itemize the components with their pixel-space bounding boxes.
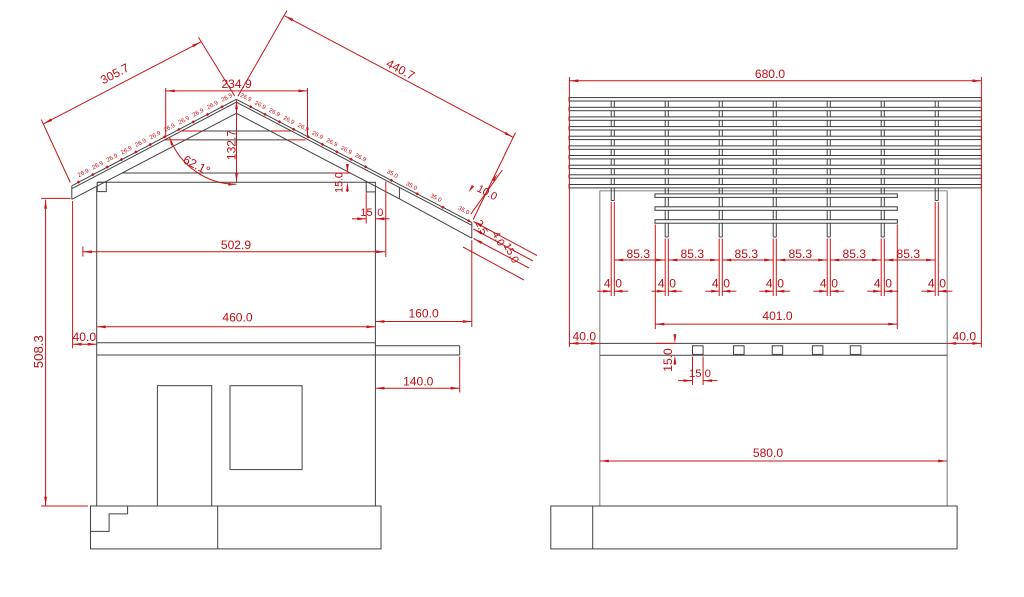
svg-text:0: 0: [615, 277, 622, 291]
svg-text:15.0: 15.0: [333, 172, 345, 193]
svg-text:0: 0: [885, 277, 892, 291]
svg-text:0: 0: [669, 277, 676, 291]
svg-text:0: 0: [705, 368, 711, 380]
svg-text:85.3: 85.3: [735, 247, 759, 261]
svg-text:502.9: 502.9: [221, 238, 252, 252]
svg-text:15: 15: [360, 207, 372, 219]
svg-text:40.0: 40.0: [953, 330, 977, 344]
svg-text:0: 0: [377, 207, 383, 219]
svg-text:4: 4: [712, 277, 719, 291]
svg-text:401.0: 401.0: [762, 309, 793, 323]
svg-text:508.3: 508.3: [31, 335, 46, 368]
svg-text:40.0: 40.0: [573, 330, 597, 344]
svg-text:132.7: 132.7: [224, 130, 238, 161]
svg-text:0: 0: [939, 277, 946, 291]
svg-text:0: 0: [777, 277, 784, 291]
svg-text:40.0: 40.0: [73, 330, 97, 344]
svg-text:4: 4: [766, 277, 773, 291]
svg-text:15: 15: [689, 368, 702, 380]
svg-text:85.3: 85.3: [627, 247, 651, 261]
svg-text:580.0: 580.0: [753, 446, 784, 460]
svg-text:234.9: 234.9: [221, 77, 252, 91]
svg-text:160.0: 160.0: [408, 307, 439, 321]
svg-text:4: 4: [928, 277, 935, 291]
svg-text:85.3: 85.3: [681, 247, 705, 261]
svg-text:0: 0: [723, 277, 730, 291]
svg-text:85.3: 85.3: [897, 247, 921, 261]
svg-text:0: 0: [831, 277, 838, 291]
svg-text:4: 4: [658, 277, 665, 291]
svg-text:140.0: 140.0: [403, 375, 434, 389]
svg-text:4: 4: [604, 277, 611, 291]
svg-text:460.0: 460.0: [222, 310, 253, 324]
svg-text:85.3: 85.3: [843, 247, 867, 261]
svg-text:4: 4: [820, 277, 827, 291]
svg-text:15.0: 15.0: [661, 348, 675, 372]
svg-text:680.0: 680.0: [755, 67, 786, 81]
svg-text:85.3: 85.3: [789, 247, 813, 261]
svg-text:4: 4: [874, 277, 881, 291]
